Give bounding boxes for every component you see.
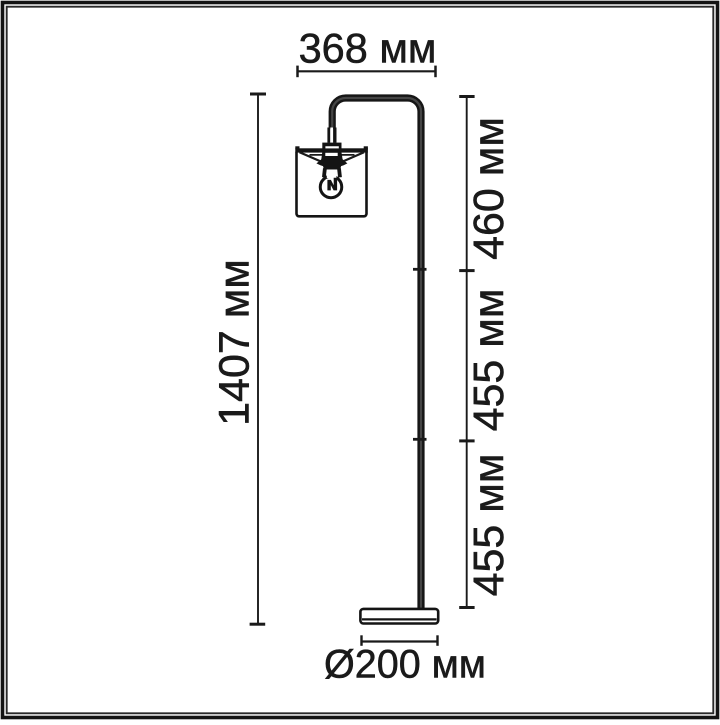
svg-text:455 мм: 455 мм (465, 454, 513, 597)
svg-text:368 мм: 368 мм (299, 25, 437, 72)
svg-text:Ø200 мм: Ø200 мм (324, 643, 486, 687)
svg-text:455 мм: 455 мм (465, 289, 513, 432)
svg-text:460 мм: 460 мм (465, 117, 513, 260)
svg-text:1407 мм: 1407 мм (211, 259, 259, 426)
